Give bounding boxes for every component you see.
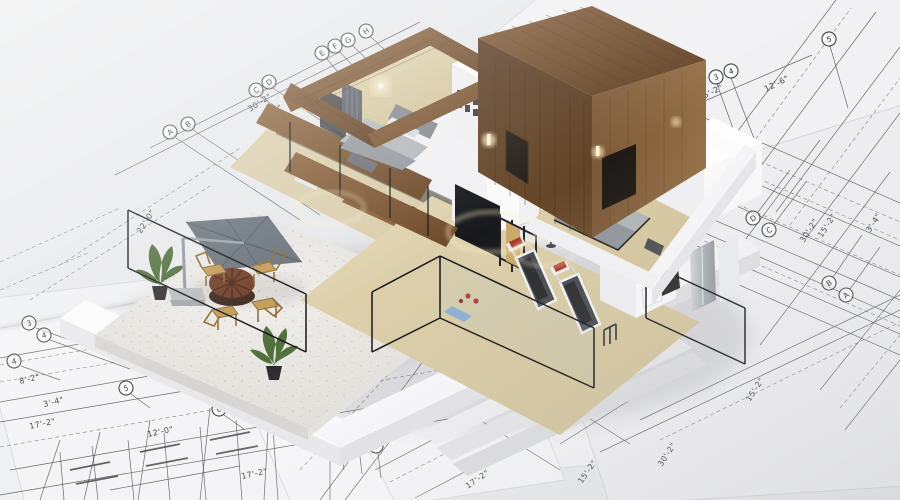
scene-3d-house-on-blueprints: ABCDEFGH2345DCBA3445678930'-2"15'-2"15'-… [0, 0, 900, 500]
umbrella-pole [183, 238, 185, 292]
art-frame [465, 105, 470, 112]
art-frame [473, 109, 478, 116]
lamp-base [546, 244, 556, 248]
tall-cabinet [718, 236, 740, 302]
sconce-glow [671, 117, 681, 127]
sconce-light [596, 146, 600, 156]
wall-lamp [379, 84, 384, 89]
scene-canvas: ABCDEFGH2345DCBA3445678930'-2"15'-2"15'-… [0, 0, 900, 500]
sconce-light [487, 134, 491, 145]
